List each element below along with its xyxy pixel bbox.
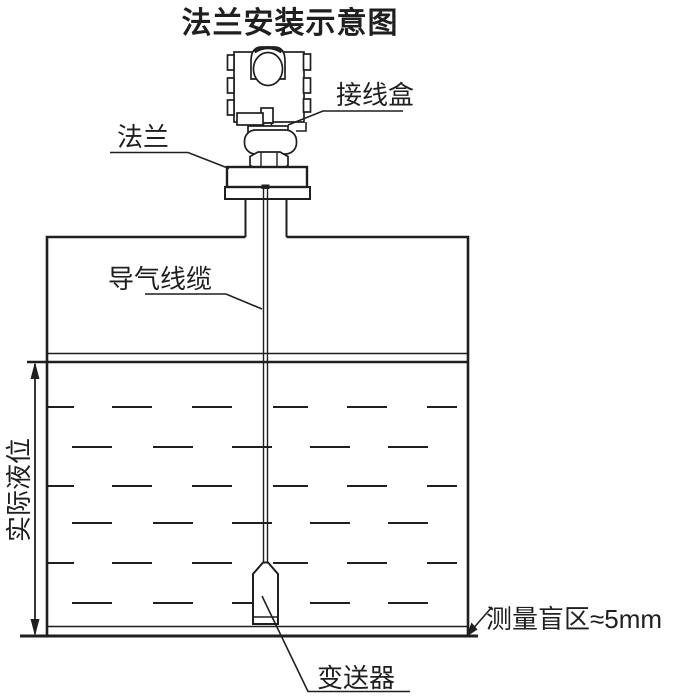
air-cable-label: 导气线缆 bbox=[108, 264, 212, 294]
diagram-canvas: 法兰安装示意图 接线盒 法兰 导气线缆 实际液位 变送器 测量盲区≈5mm bbox=[0, 0, 700, 700]
dimension-arrow-up bbox=[31, 362, 40, 379]
actual-level-label: 实际液位 bbox=[4, 438, 34, 542]
nozzle-walls bbox=[246, 199, 287, 237]
conduit-fitting bbox=[237, 113, 263, 125]
tank-top-right-and-right-wall bbox=[287, 237, 469, 636]
air-guide-cable bbox=[262, 185, 270, 567]
junction-box-rib-left bbox=[228, 55, 235, 70]
probe-transmitter bbox=[253, 563, 278, 625]
air-cable-leader bbox=[145, 294, 262, 309]
tank-nozzle bbox=[246, 199, 287, 237]
junction-box-label: 接线盒 bbox=[336, 80, 414, 110]
junction-box-rib-left bbox=[228, 78, 235, 93]
transmitter-label: 变送器 bbox=[317, 663, 395, 693]
junction-box-rib-left bbox=[228, 100, 235, 115]
flange-installation-diagram: 法兰安装示意图 接线盒 法兰 导气线缆 实际液位 变送器 测量盲区≈5mm bbox=[0, 0, 700, 700]
display-dome-glass bbox=[254, 53, 283, 86]
transmitter-head bbox=[228, 47, 311, 170]
coupling bbox=[245, 130, 297, 154]
tank-outline bbox=[20, 237, 478, 636]
flange-leader bbox=[110, 153, 229, 169]
probe-body bbox=[253, 563, 278, 625]
blind-zone-label: 测量盲区≈5mm bbox=[486, 604, 662, 634]
junction-box-rib-right bbox=[304, 78, 311, 93]
neck-step bbox=[296, 122, 306, 131]
junction-box-rib-right bbox=[304, 99, 311, 112]
junction-box-rib-right bbox=[304, 54, 311, 70]
dimension-arrow-down bbox=[31, 619, 40, 636]
flange-plate bbox=[227, 167, 307, 187]
tank-top-left-and-left-wall bbox=[47, 237, 246, 636]
cable-lines bbox=[264, 189, 268, 566]
cable-anchor bbox=[262, 185, 270, 190]
diagram-title: 法兰安装示意图 bbox=[182, 6, 399, 40]
flange-label: 法兰 bbox=[117, 122, 169, 152]
